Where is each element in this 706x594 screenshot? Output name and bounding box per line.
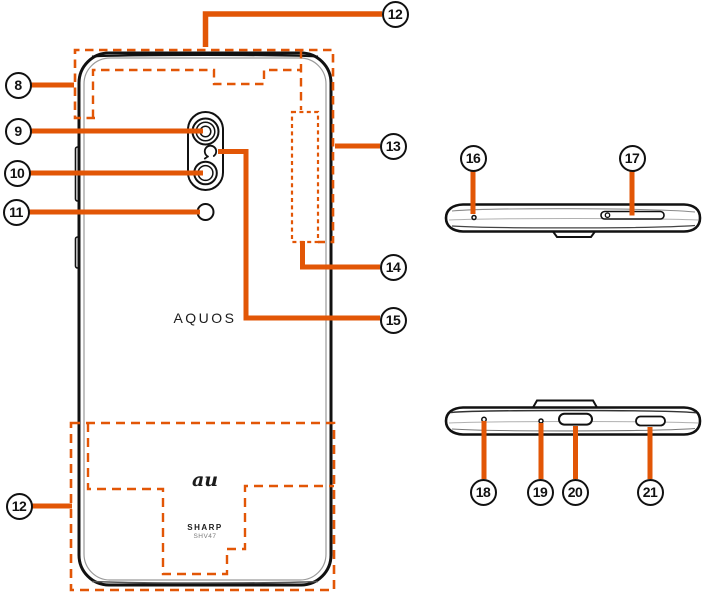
callout-19: 19 <box>527 479 554 506</box>
usb-c-port <box>559 414 592 425</box>
callout-14: 14 <box>380 254 407 281</box>
callout-10: 10 <box>4 160 31 187</box>
callout-13: 13 <box>380 133 407 160</box>
mic-hole-top <box>472 216 476 220</box>
callout-15: 15 <box>380 307 407 334</box>
diagram-canvas <box>0 0 706 594</box>
callout-11: 11 <box>3 199 30 226</box>
callout-12-bottom: 12 <box>6 493 33 520</box>
top-edge-view <box>446 205 700 238</box>
mic-hole-bottom <box>539 419 543 423</box>
leader-line-12-top <box>206 14 383 47</box>
speaker-grille <box>636 417 665 426</box>
callout-16: 16 <box>460 145 487 172</box>
carrier-logo-au: au <box>175 469 235 491</box>
manufacturer-logo-sharp: SHARP <box>174 523 236 532</box>
callout-21: 21 <box>637 479 664 506</box>
callout-8: 8 <box>5 72 32 99</box>
callout-17: 17 <box>619 145 646 172</box>
callout-9: 9 <box>5 118 32 145</box>
callout-12-top: 12 <box>382 1 409 28</box>
callout-18: 18 <box>470 479 497 506</box>
sim-tray-pinhole <box>605 213 609 217</box>
callout-20: 20 <box>562 479 589 506</box>
model-number-label: SHV47 <box>174 533 236 540</box>
device-diagram: AQUOS au SHARP SHV47 8 9 10 11 12 13 14 … <box>0 0 706 594</box>
camera-module <box>188 112 223 190</box>
brand-logo-aquos: AQUOS <box>160 310 250 326</box>
